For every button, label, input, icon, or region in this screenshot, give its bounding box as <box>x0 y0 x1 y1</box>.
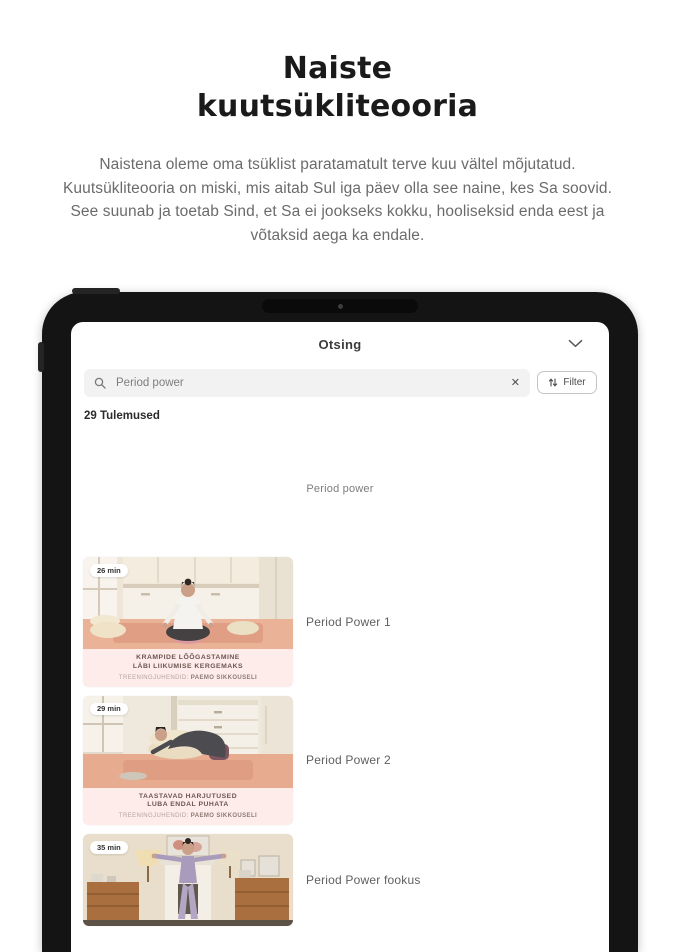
trainer-line: TREENINGJUHENDID: PAEMO SIKKOUSELI <box>87 813 289 819</box>
duration-badge: 29 min <box>90 703 128 716</box>
filter-button[interactable]: Filter <box>537 371 597 394</box>
tablet-power-button <box>72 288 120 294</box>
trainer-prefix: TREENINGJUHENDID: <box>119 813 189 819</box>
chevron-down-icon[interactable] <box>568 339 583 348</box>
duration-badge: 26 min <box>90 564 128 577</box>
overlay-title-line1: TAASTAVAD HARJUTUSED <box>87 793 289 802</box>
result-row[interactable]: 29 min TAASTAVAD HARJUTUSED LUBA ENDAL P… <box>83 696 609 826</box>
video-thumbnail[interactable]: 26 min KRAMPIDE LÕÕGASTAMINE LÄBI LIIKUM… <box>83 557 293 687</box>
tablet-volume-button <box>38 342 44 372</box>
trainer-prefix: TREENINGJUHENDID: <box>119 675 189 681</box>
tablet-camera-icon <box>338 304 343 309</box>
sheet-title: Otsing <box>71 337 609 352</box>
video-thumbnail[interactable]: 29 min TAASTAVAD HARJUTUSED LUBA ENDAL P… <box>83 696 293 826</box>
clear-search-icon[interactable]: ✕ <box>511 378 520 389</box>
thumbnail-caption: TAASTAVAD HARJUTUSED LUBA ENDAL PUHATA T… <box>83 788 293 826</box>
filter-button-label: Filter <box>563 377 585 388</box>
hero-section: Naistekuutsükliteooria Naistena oleme om… <box>0 0 675 247</box>
result-title[interactable]: Period Power fookus <box>306 873 421 887</box>
search-row: ✕ Filter <box>84 369 597 397</box>
result-title[interactable]: Period Power 2 <box>306 753 391 767</box>
intro-paragraph: Naistena oleme oma tsüklist paratamatult… <box>62 153 614 247</box>
sort-arrows-icon <box>548 377 558 388</box>
duration-badge: 35 min <box>90 841 128 854</box>
overlay-title-line1: KRAMPIDE LÕÕGASTAMINE <box>87 654 289 663</box>
thumbnail-caption: KRAMPIDE LÕÕGASTAMINE LÄBI LIIKUMISE KER… <box>83 649 293 687</box>
search-box[interactable]: ✕ <box>84 369 530 397</box>
section-label: Period power <box>71 483 609 495</box>
results-count: 29 Tulemused <box>84 410 160 422</box>
tablet-camera-housing <box>262 299 418 313</box>
page-title-line1: Naiste <box>283 51 392 86</box>
trainer-line: TREENINGJUHENDID: PAEMO SIKKOUSELI <box>87 675 289 681</box>
search-input[interactable] <box>114 376 503 390</box>
overlay-title-line2: LUBA ENDAL PUHATA <box>87 801 289 810</box>
result-row[interactable]: 26 min KRAMPIDE LÕÕGASTAMINE LÄBI LIIKUM… <box>83 557 609 687</box>
search-icon <box>94 377 106 389</box>
tablet-mockup: Otsing ✕ Filter <box>42 292 638 952</box>
app-screen: Otsing ✕ Filter <box>71 322 609 952</box>
trainer-name: PAEMO SIKKOUSELI <box>191 813 257 819</box>
page-title-line2: kuutsükliteooria <box>197 89 478 124</box>
video-thumbnail[interactable]: 35 min <box>83 834 293 926</box>
trainer-name: PAEMO SIKKOUSELI <box>191 675 257 681</box>
result-row[interactable]: 35 min Period Power fookus <box>83 834 609 926</box>
overlay-title-line2: LÄBI LIIKUMISE KERGEMAKS <box>87 663 289 672</box>
result-list: 26 min KRAMPIDE LÕÕGASTAMINE LÄBI LIIKUM… <box>83 557 609 935</box>
result-title[interactable]: Period Power 1 <box>306 615 391 629</box>
page-title: Naistekuutsükliteooria <box>0 50 675 126</box>
